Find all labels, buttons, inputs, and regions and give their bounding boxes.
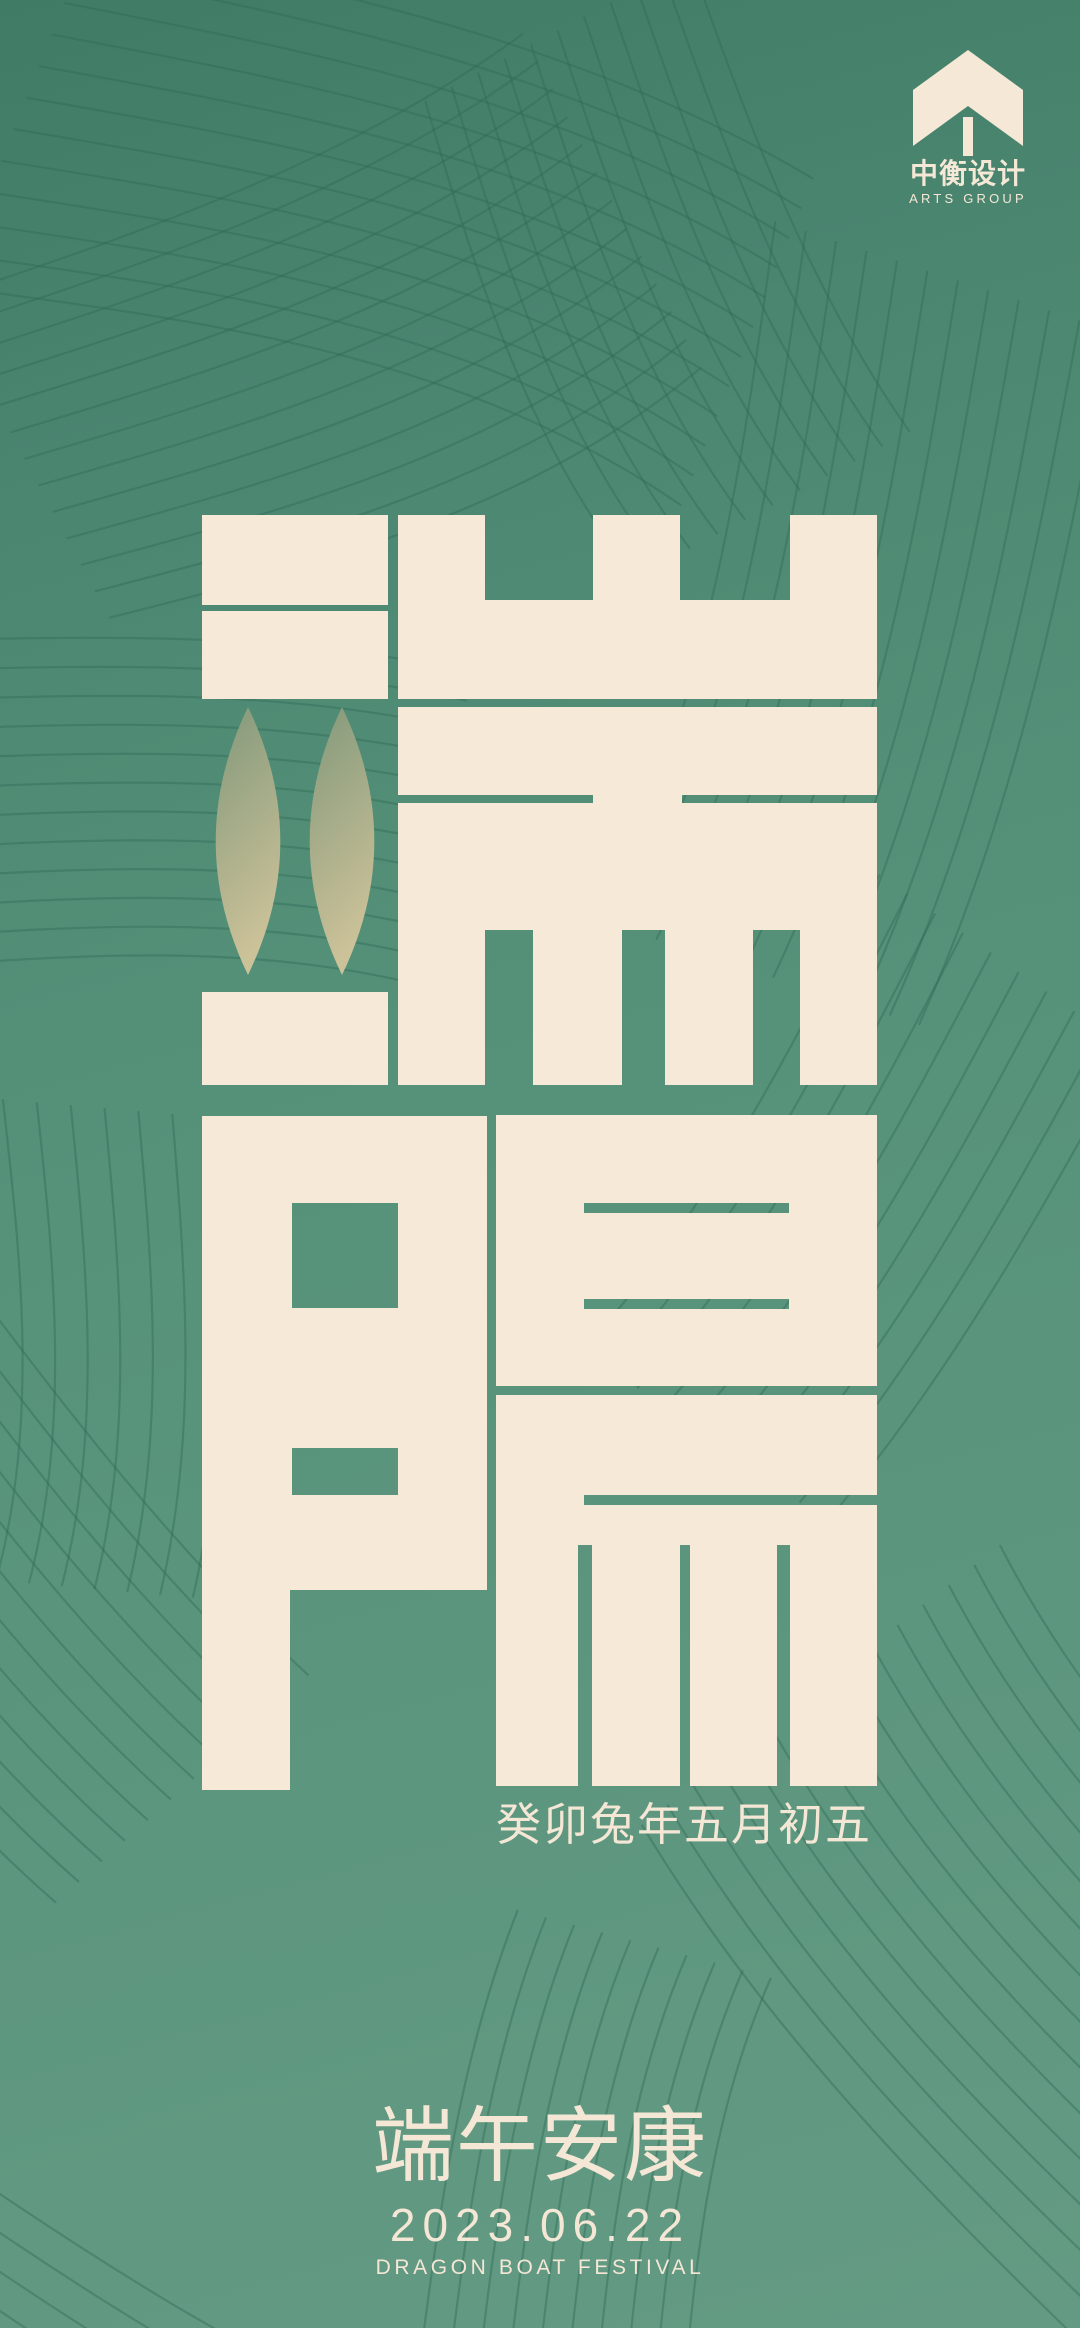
logo-name: 中衡设计 [909,160,1027,188]
leaf-shape-right [310,707,375,975]
footer: 端午安康 2023.06.22 DRAGON BOAT FESTIVAL [0,2106,1080,2278]
poster: 中衡设计 ARTS GROUP 癸卯兔年五月初五 端午安康 2023.06.22… [0,0,1080,2328]
leaf-shape-left [216,707,281,975]
greeting-text: 端午安康 [0,2106,1080,2188]
stylized-character-yang [202,1115,877,1790]
logo-subtitle: ARTS GROUP [909,192,1027,205]
logo: 中衡设计 ARTS GROUP [909,50,1027,205]
logo-bar [963,117,973,156]
festival-subtitle-text: DRAGON BOAT FESTIVAL [0,2257,1080,2278]
hero-characters [0,0,1080,2328]
date-text: 2023.06.22 [0,2202,1080,2248]
lunar-date-text: 癸卯兔年五月初五 [496,1802,880,1847]
stylized-character-duan [202,515,877,1085]
chevron-house-icon [913,50,1023,156]
